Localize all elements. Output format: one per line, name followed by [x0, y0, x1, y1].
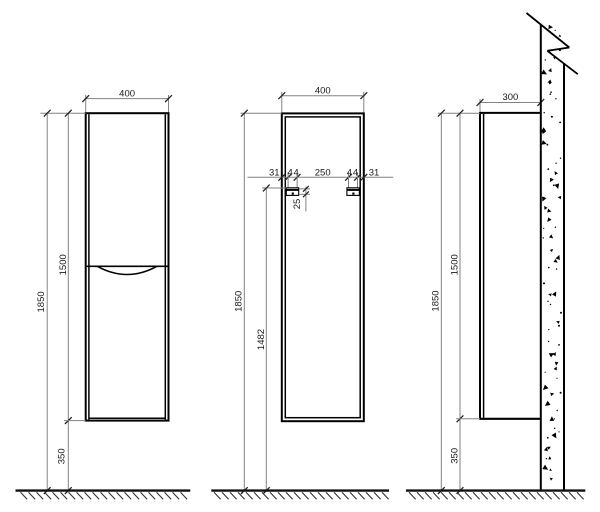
- svg-text:300: 300: [502, 92, 518, 103]
- svg-text:400: 400: [315, 85, 331, 96]
- svg-text:1500: 1500: [449, 254, 460, 275]
- svg-text:1850: 1850: [36, 291, 47, 312]
- svg-text:4: 4: [287, 168, 292, 179]
- svg-text:1850: 1850: [431, 290, 442, 311]
- svg-text:1500: 1500: [58, 254, 69, 275]
- svg-text:31: 31: [269, 168, 280, 179]
- svg-text:4: 4: [294, 168, 299, 179]
- svg-text:31: 31: [369, 168, 380, 179]
- svg-text:350: 350: [56, 448, 67, 464]
- svg-text:25: 25: [292, 199, 303, 210]
- svg-text:4: 4: [353, 168, 358, 179]
- svg-text:350: 350: [449, 448, 460, 464]
- svg-text:1850: 1850: [233, 291, 244, 312]
- svg-text:400: 400: [119, 88, 135, 99]
- svg-text:1482: 1482: [256, 329, 267, 350]
- svg-text:4: 4: [347, 168, 352, 179]
- svg-text:250: 250: [315, 168, 331, 179]
